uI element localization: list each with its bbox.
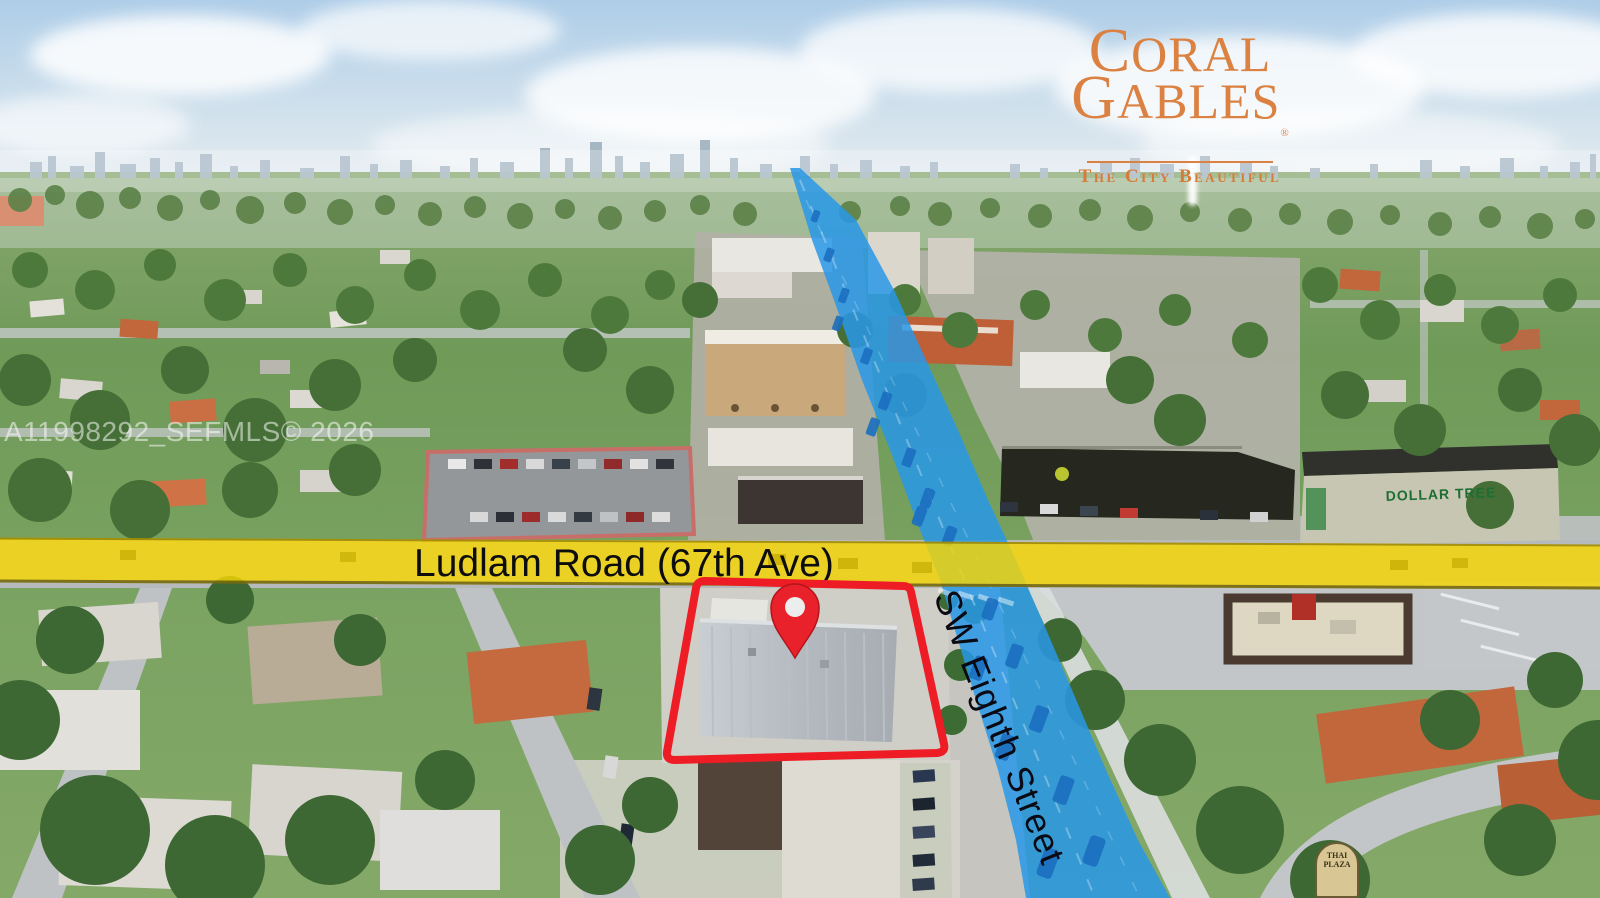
aerial-photo-base <box>0 0 1600 898</box>
coral-gables-logo: CORAL GABLES® The City Beautiful <box>1068 26 1292 188</box>
mls-watermark: A11998292_SEFMLS© 2026 <box>4 416 374 448</box>
logo-tagline: The City Beautiful <box>1068 166 1292 188</box>
logo-line-gables: GABLES® <box>1068 75 1292 156</box>
logo-divider <box>1087 161 1273 163</box>
thai-plaza-sign: THAI PLAZA <box>1315 842 1359 898</box>
road-label-ludlam: Ludlam Road (67th Ave) <box>414 542 834 586</box>
registered-mark: ® <box>1280 127 1288 139</box>
aerial-listing-photo: Ludlam Road (67th Ave) SW Eighth Street … <box>0 0 1600 898</box>
